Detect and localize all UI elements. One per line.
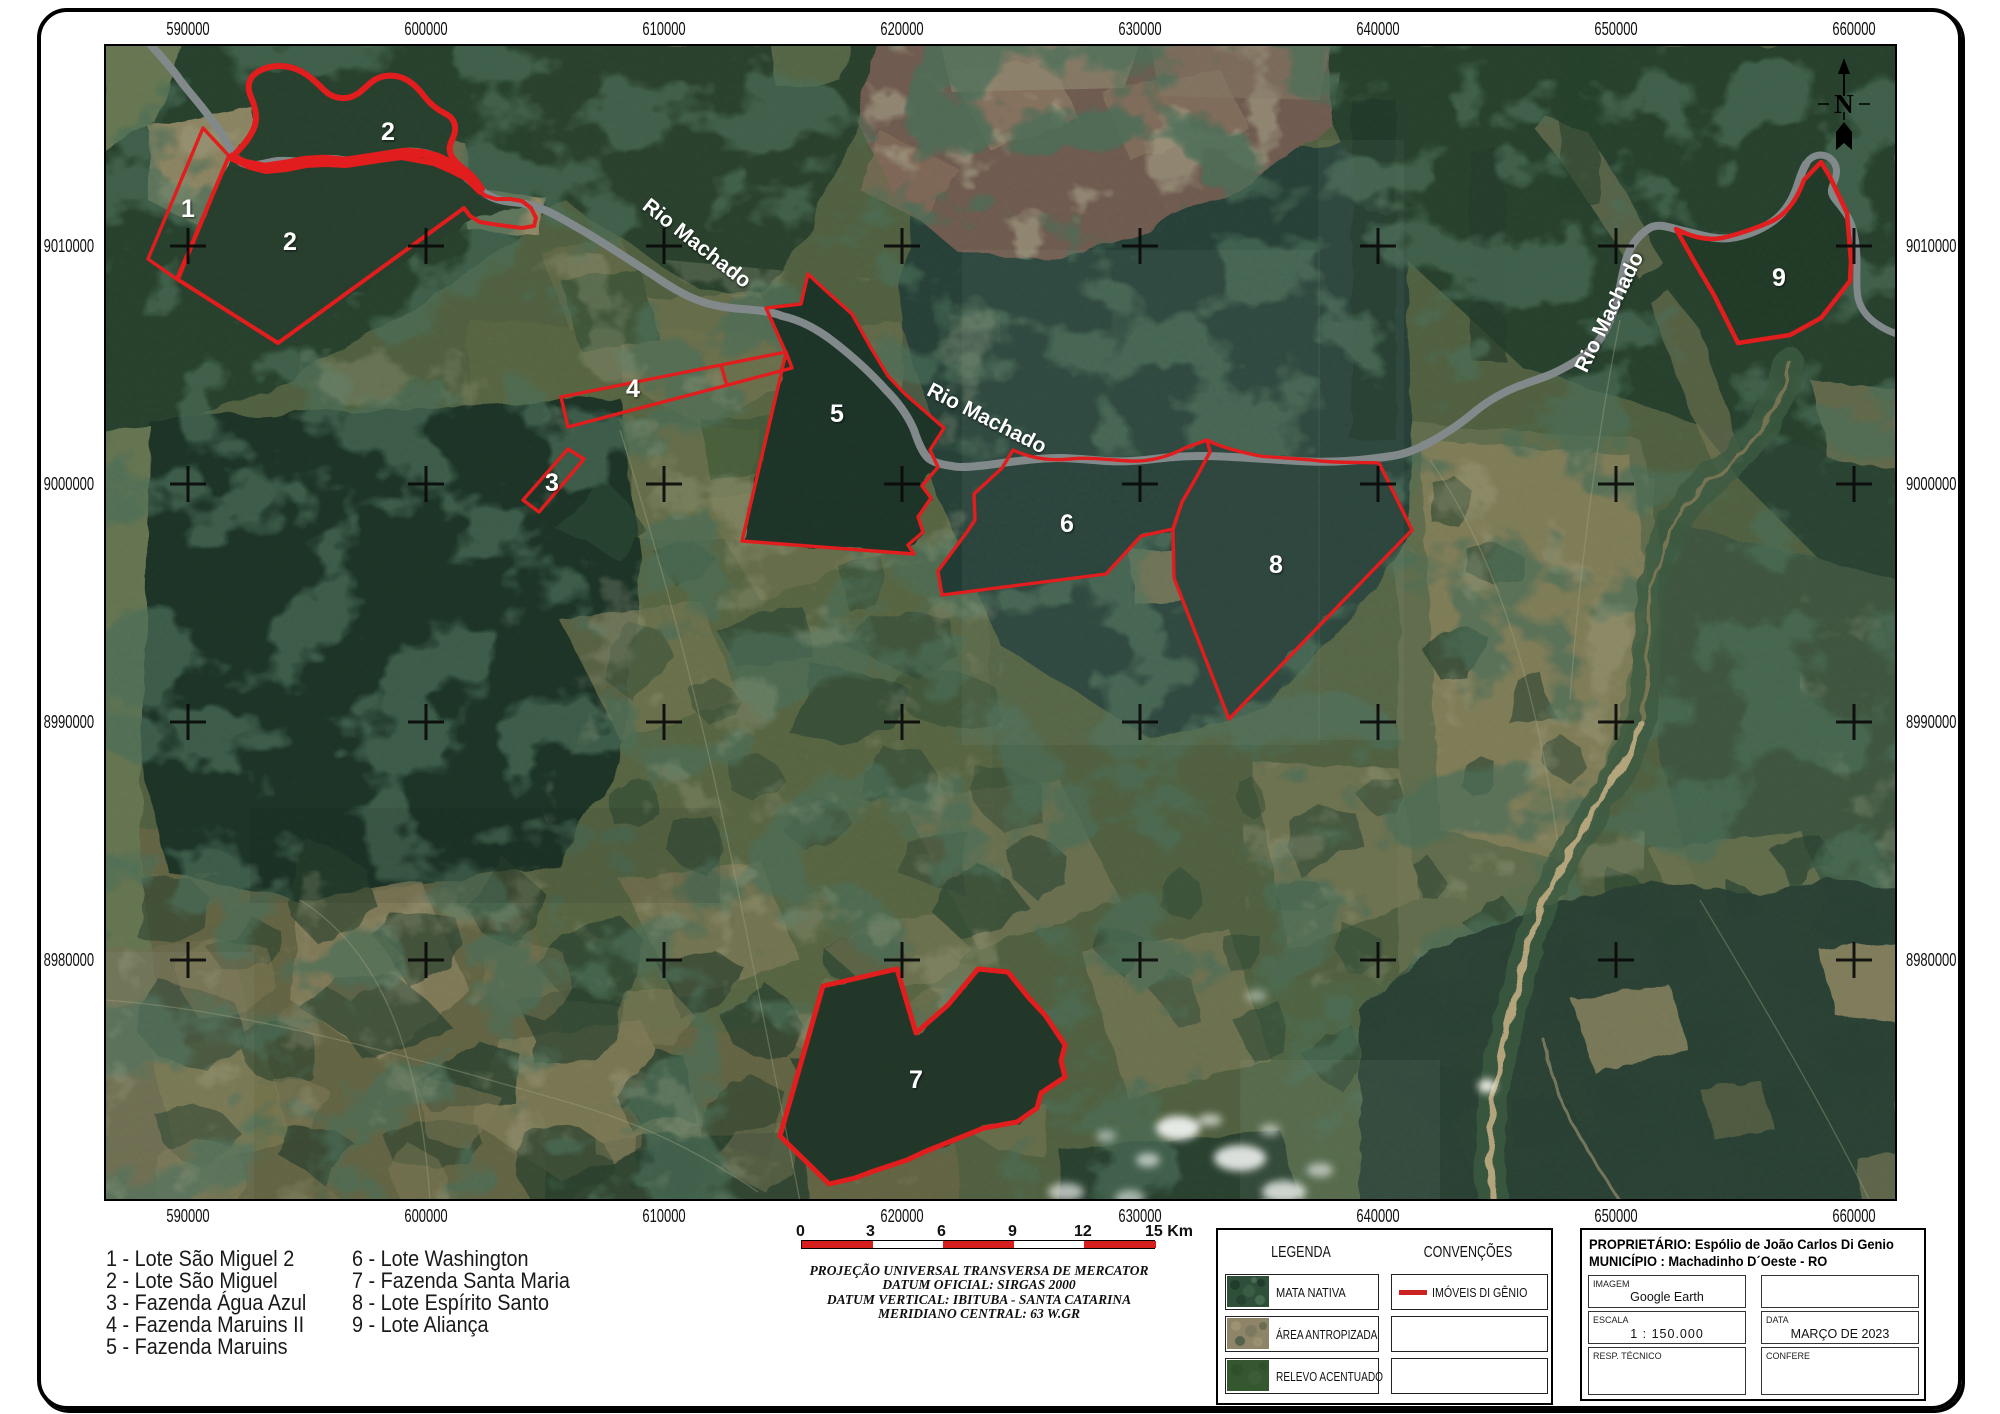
svg-text:5: 5 (830, 400, 844, 428)
svg-text:3: 3 (545, 469, 559, 497)
svg-text:4: 4 (626, 375, 640, 403)
svg-text:2: 2 (381, 118, 395, 146)
svg-text:7: 7 (909, 1066, 923, 1094)
svg-text:2: 2 (283, 228, 297, 256)
svg-text:6: 6 (1060, 510, 1074, 538)
svg-text:N: N (1834, 89, 1854, 119)
svg-text:1: 1 (181, 195, 195, 223)
svg-text:9: 9 (1772, 264, 1786, 292)
svg-text:8: 8 (1269, 551, 1283, 579)
